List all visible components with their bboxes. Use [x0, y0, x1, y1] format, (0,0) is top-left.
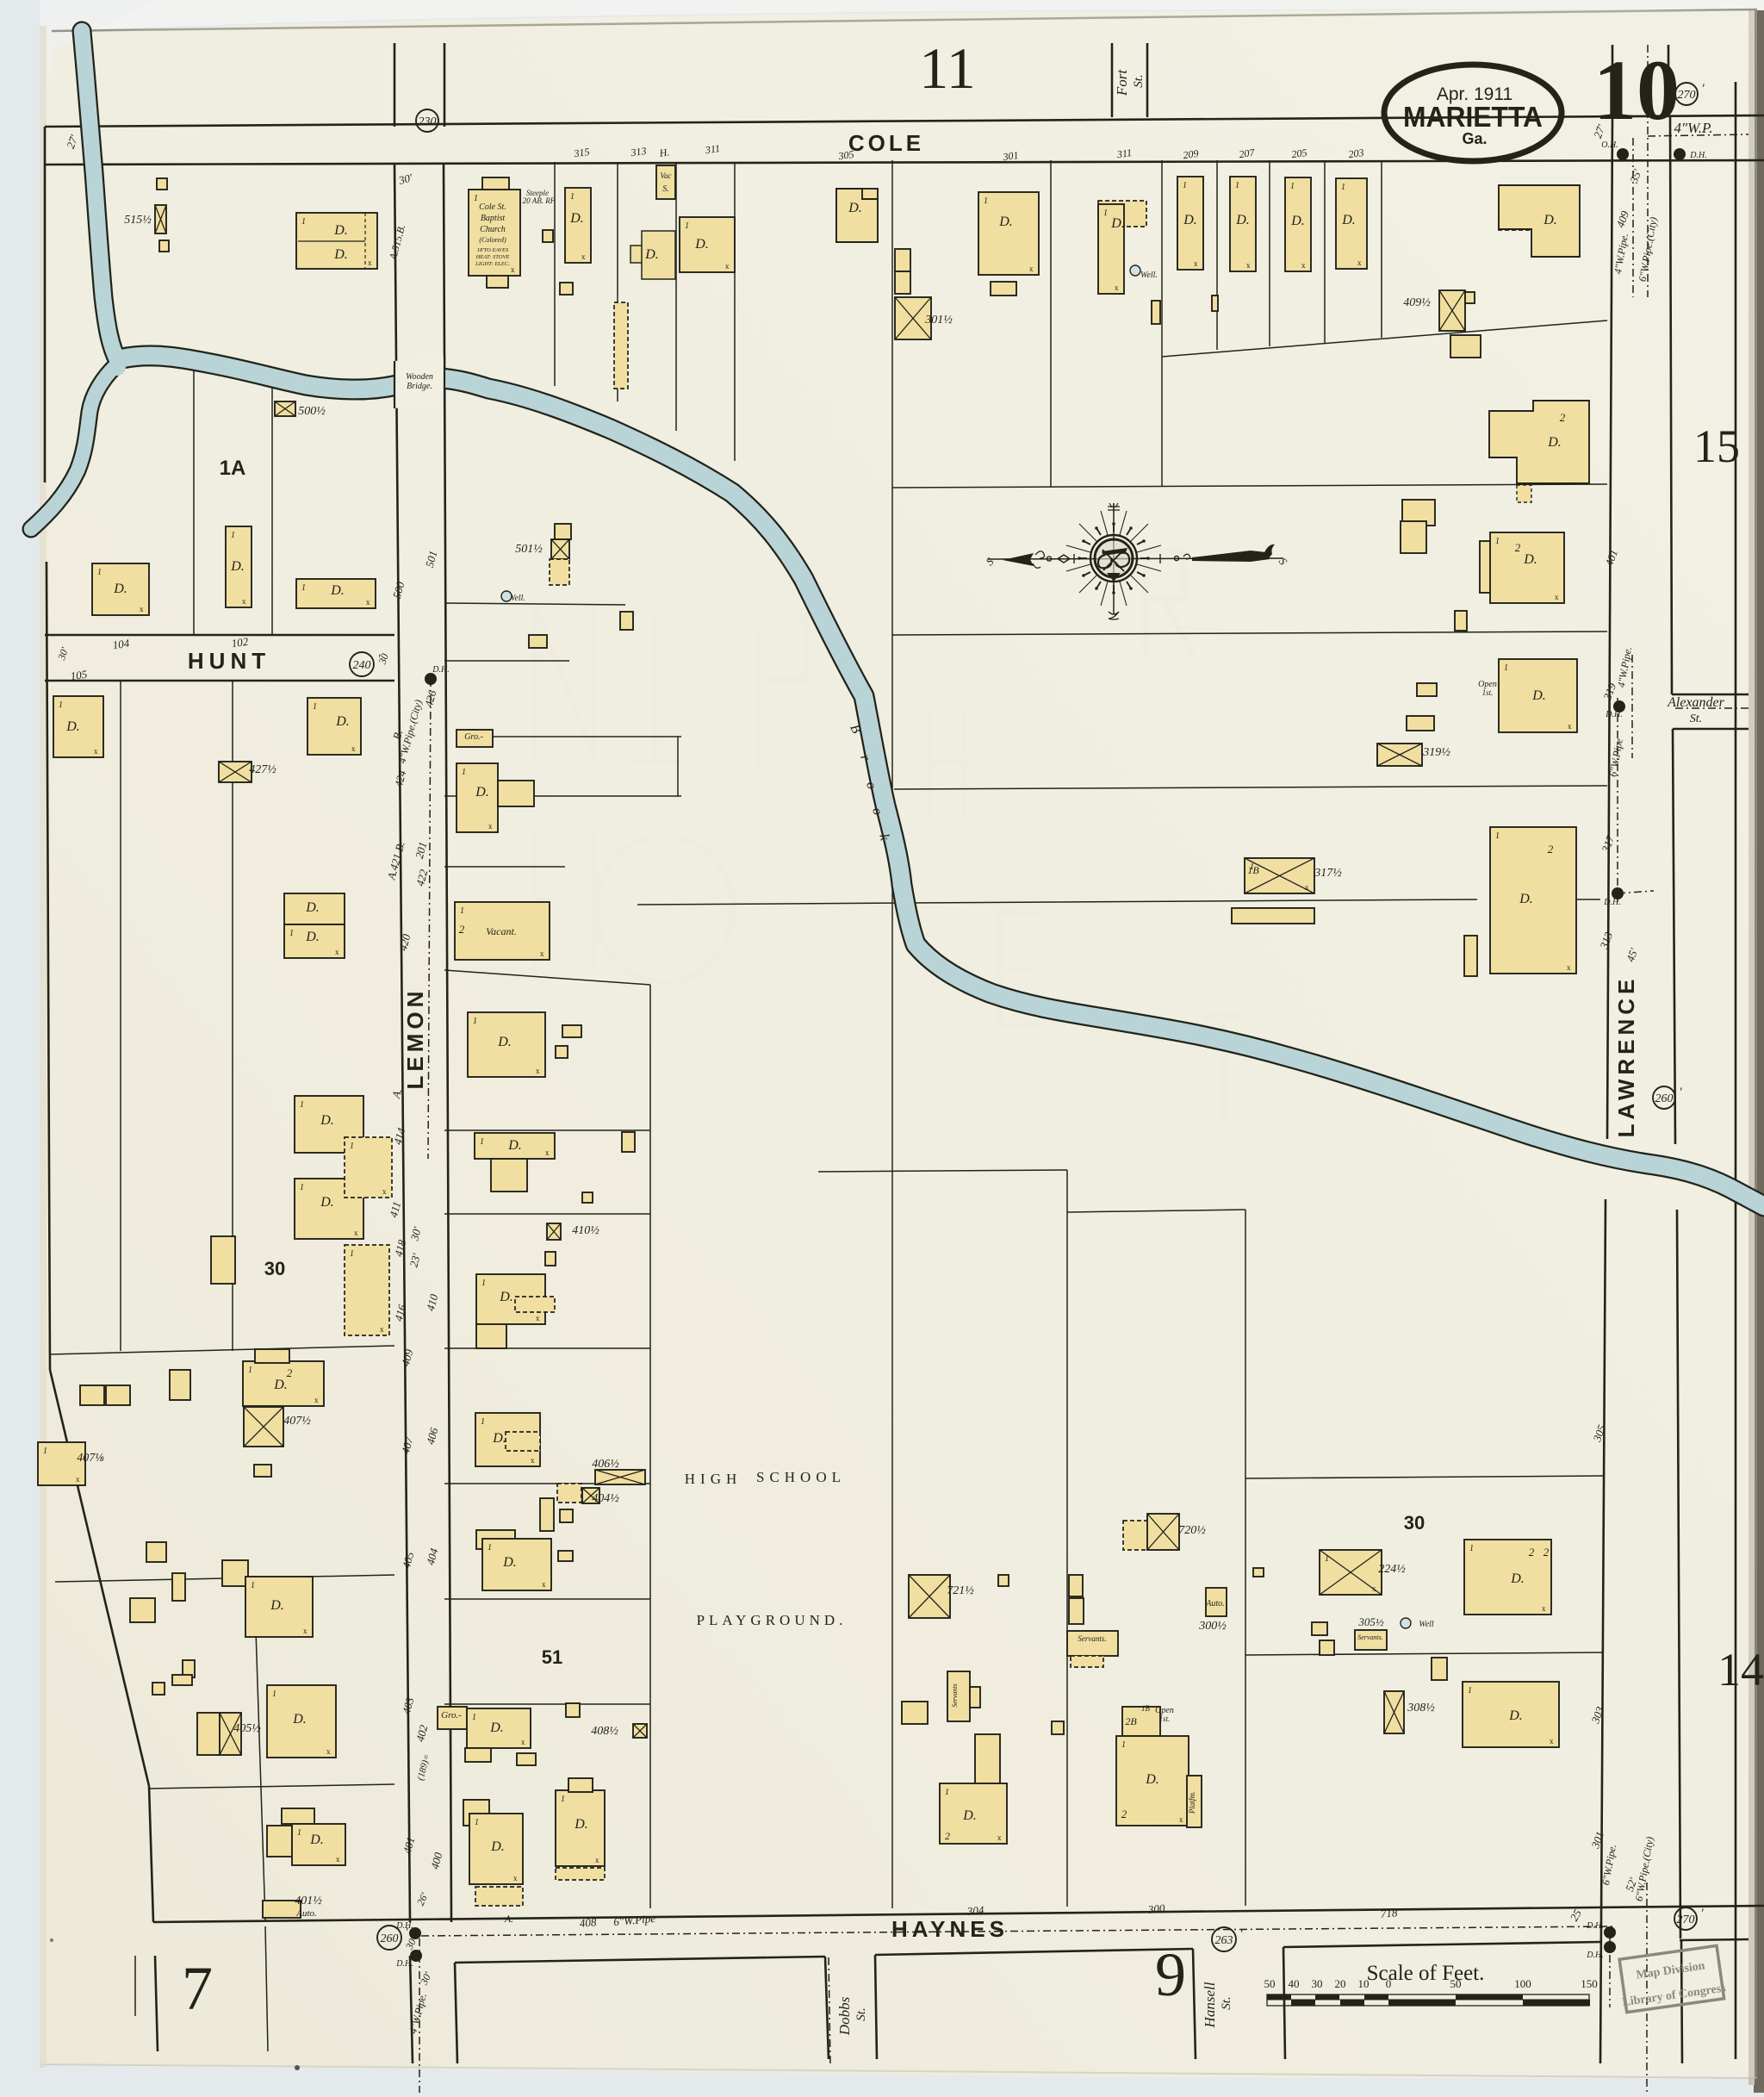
svg-text:317½: 317½ — [1314, 867, 1342, 880]
svg-text:LAWRENCE: LAWRENCE — [1613, 975, 1639, 1138]
svg-text:x: x — [1305, 883, 1309, 892]
svg-text:D.: D. — [292, 1712, 307, 1727]
svg-text:1: 1 — [1325, 1554, 1329, 1564]
svg-text:1: 1 — [1469, 1544, 1474, 1553]
svg-text:Well: Well — [1419, 1620, 1434, 1629]
svg-text:Scale of Feet.: Scale of Feet. — [1367, 1962, 1485, 1985]
svg-text:1: 1 — [480, 1137, 484, 1147]
svg-text:D.: D. — [499, 1290, 513, 1304]
svg-text:230: 230 — [419, 115, 437, 128]
svg-text:HEAT: STOVE: HEAT: STOVE — [475, 254, 510, 260]
svg-text:2: 2 — [287, 1366, 293, 1379]
svg-text:D.: D. — [1543, 213, 1557, 227]
svg-text:104: 104 — [112, 637, 131, 652]
svg-text:D.: D. — [1145, 1772, 1159, 1787]
svg-text:1: 1 — [1495, 831, 1500, 841]
svg-text:315: 315 — [573, 146, 591, 160]
svg-text:x: x — [513, 1874, 518, 1882]
svg-text:1: 1 — [1495, 537, 1500, 546]
svg-text:x: x — [536, 1314, 540, 1322]
svg-text:1: 1 — [481, 1279, 486, 1288]
svg-text:240: 240 — [353, 659, 371, 672]
svg-text:D.: D. — [962, 1808, 977, 1823]
svg-text:1: 1 — [1121, 1740, 1126, 1750]
svg-text:Gro.-: Gro.- — [441, 1710, 462, 1721]
svg-text:10: 10 — [1593, 42, 1680, 138]
svg-text:D.: D. — [694, 237, 709, 252]
svg-text:D.: D. — [270, 1598, 284, 1613]
svg-text:305: 305 — [837, 148, 855, 163]
svg-text:1: 1 — [297, 1828, 301, 1838]
svg-text:x: x — [536, 1067, 540, 1075]
svg-text:x: x — [1555, 593, 1559, 601]
svg-text:D.H.: D.H. — [1605, 710, 1622, 719]
svg-text:515½: 515½ — [124, 214, 152, 227]
svg-text:300: 300 — [1146, 1901, 1165, 1916]
svg-text:1: 1 — [472, 1713, 476, 1722]
svg-text:Hansell: Hansell — [1202, 1982, 1218, 2028]
svg-text:263: 263 — [1215, 1934, 1233, 1947]
svg-text:x: x — [997, 1833, 1002, 1842]
svg-text:409½: 409½ — [1403, 296, 1431, 309]
svg-text:Vacant.: Vacant. — [486, 925, 517, 937]
svg-text:501½: 501½ — [515, 543, 543, 556]
svg-text:1: 1 — [1504, 663, 1508, 673]
svg-text:D.: D. — [1235, 213, 1250, 227]
svg-text:207: 207 — [1239, 146, 1257, 161]
svg-text:Cole St.: Cole St. — [479, 202, 506, 212]
svg-text:x: x — [140, 605, 144, 613]
svg-text:319½: 319½ — [1422, 746, 1450, 759]
svg-text:Auto.: Auto. — [295, 1908, 317, 1919]
svg-text:1st.: 1st. — [1482, 688, 1494, 697]
svg-text:1: 1 — [984, 196, 988, 206]
svg-text:MARIETTA: MARIETTA — [1403, 101, 1543, 133]
svg-text:Dobbs: Dobbs — [836, 1996, 853, 2036]
svg-text:x: x — [1567, 963, 1571, 972]
svg-text:500½: 500½ — [298, 405, 326, 418]
svg-text:x: x — [1194, 259, 1198, 268]
svg-text:D.H.: D.H. — [432, 665, 449, 675]
svg-text:x: x — [1568, 722, 1572, 731]
svg-text:301: 301 — [1002, 149, 1020, 164]
svg-text:224½: 224½ — [1378, 1563, 1406, 1576]
svg-text:40: 40 — [1289, 1977, 1300, 1990]
svg-text:102: 102 — [231, 635, 250, 650]
svg-text:Baptist: Baptist — [481, 214, 506, 223]
svg-text:260: 260 — [1655, 1092, 1674, 1105]
svg-text:D.: D. — [502, 1555, 517, 1570]
svg-text:30: 30 — [1312, 1977, 1323, 1990]
svg-text:270: 270 — [1677, 1913, 1695, 1926]
svg-text:(Colored): (Colored) — [479, 236, 506, 244]
svg-text:401½: 401½ — [295, 1895, 322, 1907]
svg-text:1B: 1B — [1141, 1704, 1151, 1713]
svg-text:7: 7 — [182, 1954, 213, 2023]
svg-text:HAYNES: HAYNES — [891, 1916, 1009, 1942]
svg-text:D.: D. — [998, 215, 1013, 229]
svg-text:D.: D. — [65, 719, 80, 734]
svg-text:9: 9 — [1155, 1940, 1186, 2009]
svg-text:D.: D. — [320, 1195, 334, 1210]
svg-text:O.H.: O.H. — [1601, 140, 1618, 150]
svg-text:Ga.: Ga. — [1462, 130, 1487, 147]
svg-text:1: 1 — [1341, 183, 1345, 192]
svg-text:410½: 410½ — [572, 1224, 599, 1237]
svg-text:1: 1 — [462, 768, 466, 777]
svg-text:1: 1 — [313, 702, 317, 712]
svg-text:1: 1 — [488, 1543, 492, 1553]
svg-text:1: 1 — [301, 583, 306, 593]
svg-text:Bridge.: Bridge. — [407, 382, 432, 391]
svg-text:1: 1 — [300, 1100, 304, 1110]
svg-text:1: 1 — [945, 1788, 949, 1797]
svg-text:D.: D. — [507, 1138, 522, 1153]
svg-text:x: x — [242, 597, 246, 606]
svg-text:0: 0 — [1386, 1977, 1392, 1990]
svg-text:D.: D. — [309, 1833, 324, 1847]
svg-text:Vac: Vac — [661, 171, 672, 180]
svg-text:x: x — [368, 258, 372, 267]
svg-text:311: 311 — [1115, 146, 1133, 160]
svg-text:30: 30 — [264, 1258, 285, 1279]
svg-text:D.: D. — [333, 247, 348, 262]
svg-text:x: x — [511, 265, 515, 274]
svg-text:30: 30 — [1404, 1512, 1425, 1534]
svg-text:405½: 405½ — [233, 1722, 261, 1735]
svg-text:D.: D. — [497, 1035, 512, 1049]
svg-text:2: 2 — [945, 1830, 950, 1842]
svg-text:1st.: 1st. — [1159, 1714, 1171, 1723]
svg-text:304: 304 — [966, 1903, 984, 1918]
svg-text:Servants: Servants — [951, 1683, 959, 1708]
svg-text:D.: D. — [273, 1378, 288, 1392]
svg-text:D.: D. — [113, 582, 127, 596]
svg-text:x: x — [1372, 1584, 1376, 1593]
svg-text:St.: St. — [1220, 1996, 1233, 2009]
svg-text:D.H.: D.H. — [395, 1959, 413, 1969]
svg-text:1B: 1B — [1247, 864, 1259, 876]
svg-text:x: x — [595, 1856, 599, 1864]
svg-text:1: 1 — [350, 1142, 354, 1151]
svg-text:x: x — [1357, 258, 1362, 267]
svg-text:1: 1 — [1183, 181, 1187, 190]
svg-text:305½: 305½ — [1357, 1615, 1384, 1628]
svg-text:1: 1 — [1103, 208, 1108, 218]
svg-text:50: 50 — [1450, 1977, 1462, 1990]
svg-text:D.H.: D.H. — [1586, 1951, 1603, 1960]
svg-text:x: x — [94, 747, 98, 756]
svg-text:St.: St. — [1132, 74, 1146, 87]
svg-text:301½: 301½ — [924, 314, 953, 327]
svg-text:D.: D. — [569, 211, 584, 226]
svg-text:x: x — [326, 1747, 331, 1756]
svg-text:721½: 721½ — [947, 1584, 974, 1597]
svg-text:Church: Church — [480, 225, 506, 234]
svg-text:1: 1 — [272, 1689, 276, 1699]
svg-text:1: 1 — [350, 1249, 354, 1259]
svg-text:D.: D. — [475, 785, 489, 800]
svg-text:x: x — [725, 262, 730, 271]
svg-text:300½: 300½ — [1198, 1620, 1227, 1633]
svg-text:209: 209 — [1183, 147, 1200, 161]
svg-text:D.: D. — [1110, 216, 1125, 231]
svg-text:x: x — [1029, 264, 1034, 273]
svg-text:D.: D. — [848, 201, 862, 215]
svg-text:1: 1 — [1235, 181, 1239, 190]
svg-text:Wooden: Wooden — [406, 372, 433, 382]
svg-text:x: x — [354, 1229, 358, 1237]
svg-text:1: 1 — [97, 568, 102, 577]
svg-text:D.: D. — [1510, 1571, 1525, 1586]
svg-text:100: 100 — [1514, 1977, 1531, 1990]
svg-text:Gro.-: Gro.- — [464, 732, 483, 742]
svg-text:Well.: Well. — [1140, 271, 1158, 280]
svg-text:St.: St. — [854, 2007, 868, 2020]
svg-text:x: x — [303, 1627, 307, 1635]
svg-text:1: 1 — [460, 906, 464, 916]
svg-text:x: x — [1550, 1737, 1554, 1745]
svg-text:51: 51 — [542, 1646, 562, 1668]
svg-text:2: 2 — [459, 923, 465, 936]
svg-text:PLAYGROUND.: PLAYGROUND. — [697, 1612, 848, 1628]
svg-text:HIGH: HIGH — [685, 1471, 742, 1487]
svg-text:205: 205 — [1291, 146, 1308, 160]
svg-text:1: 1 — [59, 700, 63, 710]
svg-text:Servants.: Servants. — [1078, 1634, 1106, 1643]
svg-text:2: 2 — [1560, 411, 1566, 424]
svg-text:20: 20 — [1335, 1977, 1346, 1990]
svg-text:Auto.: Auto. — [1205, 1599, 1224, 1609]
svg-text:x: x — [1115, 283, 1119, 292]
svg-text:1: 1 — [43, 1447, 47, 1456]
svg-text:20 AB. RF.: 20 AB. RF. — [523, 196, 556, 205]
svg-text:D.: D. — [1531, 688, 1546, 703]
svg-text:18'TO EAVES: 18'TO EAVES — [477, 247, 509, 253]
svg-text:260: 260 — [381, 1932, 399, 1945]
svg-text:2: 2 — [1543, 1546, 1550, 1559]
svg-text:2: 2 — [1515, 541, 1521, 554]
svg-text:1: 1 — [231, 531, 235, 540]
svg-text:x: x — [335, 948, 339, 956]
svg-text:D.: D. — [333, 223, 348, 238]
svg-text:Platfm.: Platfm. — [1188, 1791, 1196, 1814]
svg-text:4"W.P.: 4"W.P. — [1674, 120, 1713, 136]
svg-text:270: 270 — [1678, 89, 1696, 102]
svg-text:150: 150 — [1581, 1977, 1598, 1990]
svg-text:2: 2 — [1529, 1546, 1535, 1559]
svg-text:308½: 308½ — [1407, 1702, 1435, 1714]
svg-text:D.H.: D.H. — [1689, 151, 1706, 160]
svg-text:1: 1 — [481, 1417, 485, 1427]
svg-text:10: 10 — [1358, 1977, 1370, 1990]
svg-text:1: 1 — [301, 217, 306, 227]
svg-text:D.: D. — [1290, 214, 1305, 228]
svg-text:407⅛: 407⅛ — [77, 1452, 104, 1465]
svg-text:1: 1 — [475, 1818, 479, 1827]
svg-text:x: x — [366, 598, 370, 607]
svg-text:x: x — [488, 822, 493, 831]
svg-text:404½: 404½ — [592, 1492, 619, 1505]
svg-text:105: 105 — [70, 668, 89, 683]
svg-text:D.: D. — [490, 1839, 505, 1854]
svg-text:x: x — [540, 949, 544, 958]
svg-text:S.: S. — [662, 184, 669, 194]
svg-text:427½: 427½ — [249, 763, 276, 776]
svg-text:x: x — [76, 1475, 80, 1484]
svg-text:406½: 406½ — [592, 1458, 619, 1471]
svg-text:2: 2 — [1548, 843, 1554, 856]
svg-text:x: x — [1246, 261, 1251, 270]
svg-text:311: 311 — [704, 142, 721, 156]
svg-text:1: 1 — [561, 1795, 565, 1804]
svg-text:1: 1 — [300, 1183, 304, 1192]
svg-text:D.: D. — [489, 1721, 504, 1735]
svg-text:14: 14 — [1717, 1644, 1764, 1696]
svg-text:D.: D. — [305, 930, 320, 944]
svg-text:1: 1 — [1468, 1686, 1472, 1696]
svg-text:D.: D. — [1547, 435, 1562, 450]
svg-text:x: x — [542, 1580, 546, 1589]
svg-text:x: x — [521, 1738, 525, 1746]
svg-text:1: 1 — [1290, 182, 1295, 191]
svg-text:x: x — [314, 1396, 319, 1404]
svg-text:720½: 720½ — [1178, 1524, 1206, 1537]
svg-text:D.: D. — [574, 1817, 588, 1832]
svg-text:x: x — [336, 1855, 340, 1864]
svg-text:x: x — [1542, 1604, 1546, 1613]
svg-text:1: 1 — [251, 1581, 255, 1590]
svg-text:x: x — [382, 1187, 387, 1196]
svg-text:Servants.: Servants. — [1357, 1633, 1383, 1641]
svg-text:x: x — [380, 1325, 384, 1334]
svg-text:H.: H. — [658, 146, 670, 159]
svg-text:x: x — [351, 744, 356, 753]
svg-text:408: 408 — [579, 1915, 597, 1930]
svg-text:x: x — [581, 252, 586, 261]
svg-text:2: 2 — [1121, 1808, 1127, 1820]
svg-text:HUNT: HUNT — [188, 648, 270, 674]
svg-text:408½: 408½ — [591, 1725, 618, 1738]
svg-text:15: 15 — [1693, 420, 1740, 472]
svg-text:D.H.: D.H. — [395, 1921, 413, 1931]
svg-text:x: x — [1179, 1815, 1183, 1824]
svg-text:1: 1 — [289, 929, 294, 938]
svg-text:A.: A. — [504, 1913, 513, 1925]
svg-text:1: 1 — [473, 1017, 477, 1026]
svg-text:D.: D. — [1523, 552, 1537, 567]
svg-text:D.: D. — [305, 900, 320, 915]
svg-text:D.: D. — [1519, 892, 1533, 906]
svg-text:D.: D. — [644, 247, 659, 262]
svg-text:2B: 2B — [1125, 1715, 1137, 1727]
svg-text:St.: St. — [1690, 712, 1702, 725]
svg-text:1: 1 — [685, 221, 689, 231]
svg-text:D.: D. — [1508, 1708, 1523, 1723]
svg-text:LEMON: LEMON — [402, 987, 428, 1090]
svg-text:313: 313 — [630, 145, 648, 159]
svg-text:Fort: Fort — [1114, 69, 1130, 97]
svg-text:D.: D. — [330, 583, 345, 598]
svg-text:D.: D. — [1183, 213, 1197, 227]
svg-text:D.: D. — [335, 714, 350, 729]
svg-text:D.: D. — [492, 1431, 506, 1446]
svg-text:407½: 407½ — [283, 1415, 311, 1428]
svg-text:x: x — [1301, 261, 1306, 270]
svg-text:x: x — [531, 1456, 535, 1465]
svg-text:LIGHT: ELEC.: LIGHT: ELEC. — [475, 261, 510, 267]
svg-text:718: 718 — [1380, 1906, 1398, 1920]
svg-text:1: 1 — [570, 192, 575, 202]
svg-text:50: 50 — [1264, 1977, 1276, 1990]
svg-text:1: 1 — [474, 194, 478, 203]
svg-text:x: x — [545, 1148, 550, 1157]
svg-text:1A: 1A — [220, 457, 246, 480]
svg-text:11: 11 — [919, 35, 975, 101]
svg-text:SCHOOL: SCHOOL — [756, 1469, 846, 1485]
svg-text:D.: D. — [1341, 213, 1356, 227]
svg-text:1: 1 — [248, 1366, 252, 1375]
svg-text:COLE: COLE — [848, 130, 924, 156]
svg-text:203: 203 — [1348, 146, 1365, 160]
svg-text:D.: D. — [230, 559, 245, 574]
svg-text:D.: D. — [320, 1113, 334, 1128]
